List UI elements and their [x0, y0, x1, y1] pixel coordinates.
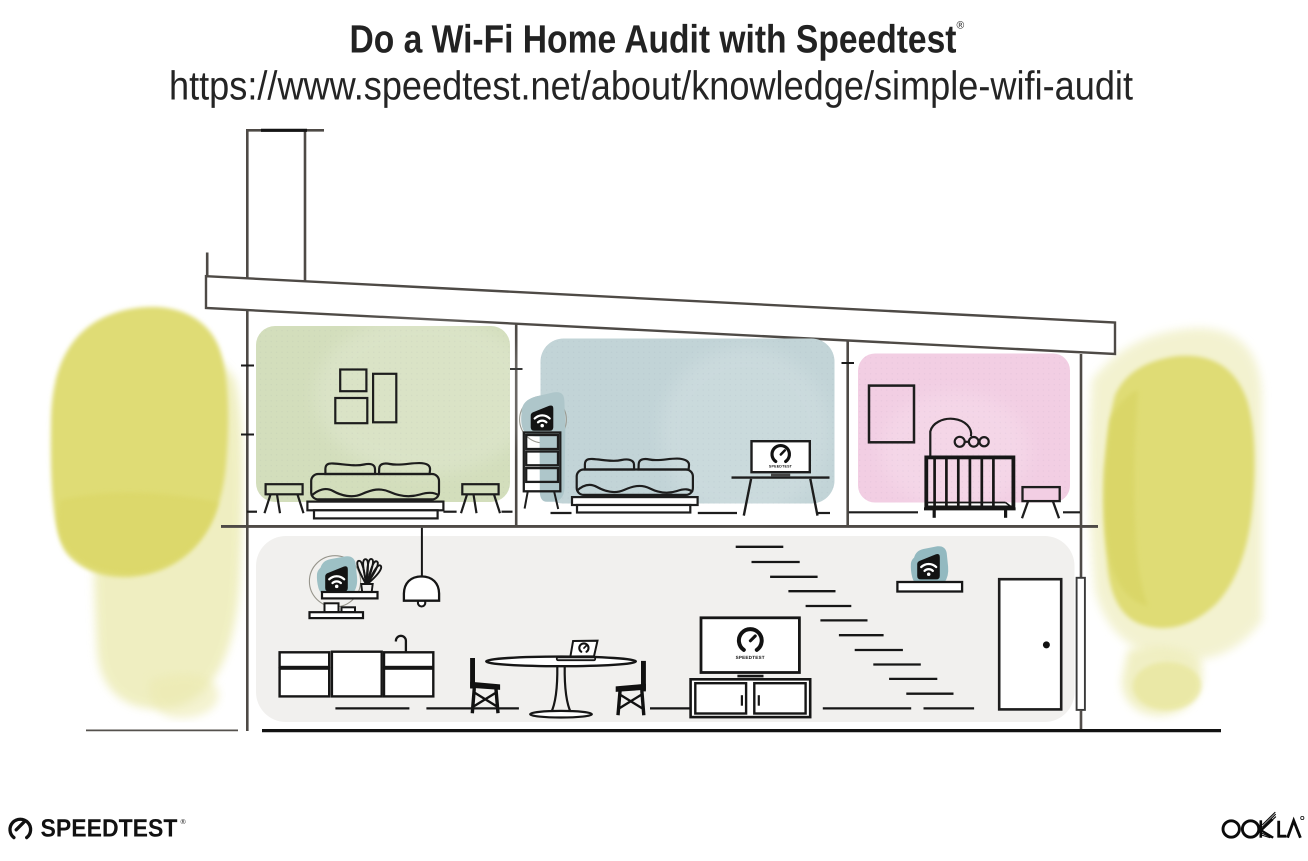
svg-text:SPEEDTEST: SPEEDTEST [736, 655, 765, 660]
svg-text:®: ® [957, 20, 965, 32]
svg-text:SPEEDTEST: SPEEDTEST [769, 464, 793, 468]
svg-text:®: ® [181, 819, 187, 826]
svg-text:SPEEDTEST: SPEEDTEST [41, 815, 178, 843]
svg-text:Do a Wi-Fi Home Audit with Spe: Do a Wi-Fi Home Audit with Speedtest [350, 17, 957, 61]
svg-text:https://www.speedtest.net/abou: https://www.speedtest.net/about/knowledg… [169, 63, 1133, 109]
